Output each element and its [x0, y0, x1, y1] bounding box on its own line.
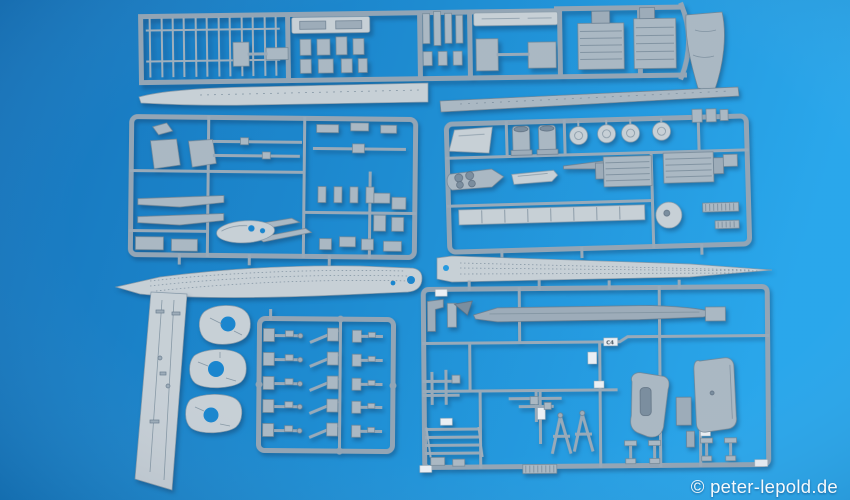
vignette-overlay: [0, 0, 850, 500]
photographer-watermark: © peter-lepold.de: [691, 476, 838, 498]
scene-canvas: C4: [0, 0, 850, 500]
photo-model-kit-sprues: C4: [0, 0, 850, 500]
